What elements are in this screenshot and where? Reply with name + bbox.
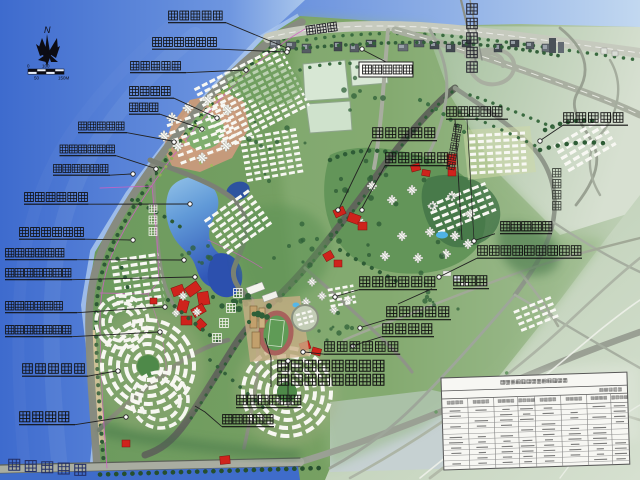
- svg-text:100: 100: [42, 64, 50, 69]
- svg-text:N: N: [44, 25, 51, 35]
- svg-text:150M: 150M: [58, 76, 70, 81]
- svg-text:50: 50: [34, 76, 40, 81]
